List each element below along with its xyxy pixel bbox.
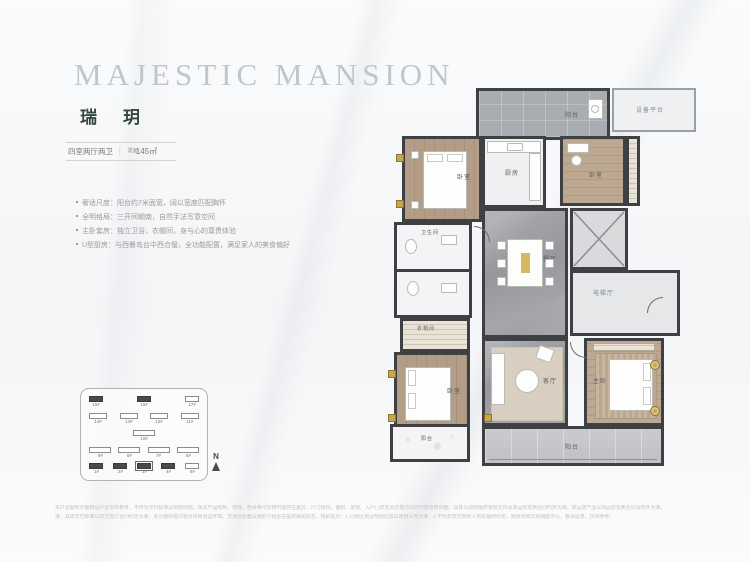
feature-item: U型厨房：与西餐岛台中西合璧，全功能配置，满足家人的美食偏好 (76, 239, 290, 253)
brochure-page: MAJESTIC MANSION 瑞玥 四室两厅两卫 │ 建面 145㎡ 奢适尺… (0, 0, 750, 562)
feature-text: U型厨房：与西餐岛台中西合璧，全功能配置，满足家人的美食偏好 (82, 242, 290, 249)
building-block-icon (133, 430, 155, 436)
disclaimer-line: 准，具体交付标准以双方签订合同约定为准，本页面所载内容对项目周边环境、交通及配套… (55, 514, 695, 522)
pillow (643, 387, 651, 405)
building-block-icon (137, 463, 151, 469)
room-balcony-side: 阳台 (390, 424, 470, 462)
room-label: 厨房 (505, 171, 519, 177)
dining-chair (497, 277, 506, 286)
dining-chair (545, 259, 554, 268)
bullet-icon (76, 229, 78, 231)
window-marker-icon (650, 360, 660, 370)
site-building: 14# (89, 413, 107, 426)
building-label: 12# (156, 420, 164, 425)
site-building: 16# (137, 396, 151, 409)
north-arrow-icon (212, 462, 220, 471)
building-block-icon (185, 396, 199, 402)
area-label: 建面 (128, 149, 134, 155)
building-label: 15# (92, 403, 100, 408)
table-runner (521, 253, 530, 273)
building-label: 4# (165, 470, 170, 475)
pillow (447, 154, 463, 162)
spec-divider: │ (118, 147, 123, 156)
room-closet: 衣帽间 (400, 318, 470, 352)
room-label: 卫生间 (421, 231, 439, 236)
disclaimer-line: 本户型图所示面积及户型仅供参考，不作为交付标准及购房依据，相关产品结构、墙体、色… (55, 505, 695, 513)
site-building: 11# (181, 413, 199, 426)
site-building: 7# (148, 447, 170, 460)
site-building: 17# (185, 396, 199, 409)
area-spec: 建面 145㎡ (128, 146, 157, 157)
building-block-icon (148, 447, 170, 453)
room-balcony-top: 阳台 (476, 88, 610, 140)
room-living: 客厅 (482, 338, 568, 426)
site-building: 1# (89, 463, 103, 476)
building-block-icon (150, 413, 168, 419)
room-dining: 餐厅 (482, 208, 568, 338)
building-label: 6# (185, 453, 190, 458)
room-bedroom-top-left: 卧室 (402, 136, 482, 222)
unit-name: 瑞玥 (80, 103, 166, 128)
building-label: 10# (140, 437, 148, 442)
window-marker-icon (650, 406, 660, 416)
building-block-icon (161, 463, 175, 469)
room-bathroom: 卫生间 (394, 222, 472, 318)
layout-spec: 四室两厅两卫 (68, 146, 113, 157)
dining-chair (545, 241, 554, 250)
feature-item: 主卧套房：独立卫浴，衣帽间，身与心的尊贵体验 (76, 225, 290, 239)
site-plan-row: 15#16#17# (89, 396, 199, 409)
site-building: 10# (133, 430, 155, 443)
building-block-icon (113, 463, 127, 469)
nightstand (411, 201, 419, 209)
building-label: 8# (127, 453, 132, 458)
site-plan-row: 14#13#12#11# (89, 413, 199, 426)
site-building: 4# (161, 463, 175, 476)
kitchen-sink (507, 143, 523, 151)
elevator-shaft (570, 208, 628, 270)
building-block-icon (89, 413, 107, 419)
disclaimer: 本户型图所示面积及户型仅供参考，不作为交付标准及购房依据，相关产品结构、墙体、色… (55, 505, 695, 524)
dining-chair (545, 277, 554, 286)
room-label: 客厅 (543, 379, 557, 385)
dining-chair (497, 259, 506, 268)
bullet-icon (76, 201, 78, 203)
building-block-icon (137, 396, 151, 402)
coffee-table (515, 369, 539, 393)
room-label: 卧室 (447, 389, 461, 395)
room-bedroom-top-right: 卧室 (560, 136, 626, 206)
building-label: 1# (93, 470, 98, 475)
room-balcony-bottom: 阳台 (482, 426, 664, 466)
site-building: 12# (150, 413, 168, 426)
building-label: 14# (94, 420, 102, 425)
entry-door-icon (647, 297, 663, 313)
room-label: 卧室 (589, 173, 603, 179)
building-label: 17# (188, 403, 196, 408)
feature-text: 主卧套房：独立卫浴，衣帽间，身与心的尊贵体验 (82, 228, 236, 235)
site-building: 2# (113, 463, 127, 476)
building-block-icon (181, 413, 199, 419)
feature-text: 奢适尺度：阳台约7米面宽，阔以宽度匹配胸怀 (82, 200, 226, 207)
wardrobe (593, 343, 655, 351)
site-plan-row: 9#8#7#6# (89, 447, 199, 460)
desk (567, 143, 589, 153)
room-label: 设备平台 (636, 108, 664, 114)
site-building: 9# (89, 447, 111, 460)
room-equipment-platform: 设备平台 (612, 88, 696, 132)
bullet-icon (76, 243, 78, 245)
building-label: 11# (186, 420, 193, 425)
building-label: 5# (189, 470, 194, 475)
room-label: 阳台 (421, 437, 433, 442)
feature-list: 奢适尺度：阳台约7米面宽，阔以宽度匹配胸怀 全明格局：三开间朝南，自然手法写意空… (76, 197, 290, 253)
window-marker-icon (396, 200, 404, 208)
room-label: 衣帽间 (417, 327, 435, 332)
window-marker-icon (388, 414, 396, 422)
elevator-x-icon (573, 211, 625, 267)
feature-text: 全明格局：三开间朝南，自然手法写意空间 (82, 214, 215, 221)
bullet-icon (76, 215, 78, 217)
window-marker-icon (388, 370, 396, 378)
washing-machine-drum-icon (591, 105, 599, 113)
building-label: 9# (97, 453, 102, 458)
building-label: 7# (156, 453, 161, 458)
room-label: 主卧 (593, 379, 607, 385)
wardrobe (626, 136, 640, 206)
pillow (427, 154, 443, 162)
feature-item: 全明格局：三开间朝南，自然手法写意空间 (76, 211, 290, 225)
compass: N (209, 452, 223, 471)
building-block-icon (185, 463, 199, 469)
sofa (491, 353, 505, 405)
room-label: 卧室 (457, 175, 471, 181)
site-building: 3# (137, 463, 151, 476)
balcony-rail (489, 459, 657, 460)
toilet (405, 239, 417, 254)
room-label: 电梯厅 (593, 291, 614, 297)
toilet (407, 281, 419, 296)
room-kitchen: 厨房 (482, 136, 546, 208)
floor-plan: 阳台 设备平台 卧室 厨房 卧室 (388, 84, 700, 484)
building-block-icon (89, 463, 103, 469)
spec-bar: 四室两厅两卫 │ 建面 145㎡ (66, 142, 176, 161)
wall-divider (397, 269, 469, 272)
window-marker-icon (484, 414, 492, 422)
vanity-sink (441, 283, 457, 293)
site-building: 6# (177, 447, 199, 460)
pillow (408, 393, 416, 409)
room-elevator-hall: 电梯厅 (570, 270, 680, 336)
site-building: 13# (120, 413, 138, 426)
site-plan-row: 1#2#3#4#5# (89, 463, 199, 476)
site-plan: 15#16#17#14#13#12#11#10#9#8#7#6#1#2#3#4#… (80, 388, 208, 481)
building-label: 13# (125, 420, 133, 425)
building-block-icon (89, 447, 111, 453)
area-value: 145㎡ (136, 147, 157, 156)
window-marker-icon (396, 154, 404, 162)
chair (571, 155, 582, 166)
nightstand (411, 151, 419, 159)
building-block-icon (89, 396, 103, 402)
vanity-sink (441, 235, 457, 245)
site-plan-row: 10# (89, 430, 199, 443)
dining-table (507, 239, 543, 287)
site-building: 15# (89, 396, 103, 409)
building-block-icon (118, 447, 140, 453)
door-icon (570, 342, 586, 358)
room-label: 阳台 (565, 445, 579, 451)
building-label: 2# (117, 470, 122, 475)
building-label: 3# (141, 470, 146, 475)
building-block-icon (177, 447, 199, 453)
site-building: 5# (185, 463, 199, 476)
room-label: 阳台 (565, 113, 579, 119)
dining-chair (497, 241, 506, 250)
kitchen-counter (529, 153, 541, 201)
building-block-icon (120, 413, 138, 419)
building-label: 16# (140, 403, 148, 408)
site-building: 8# (118, 447, 140, 460)
pillow (408, 370, 416, 386)
compass-north-label: N (209, 452, 223, 461)
room-bedroom-bottom-left: 卧室 (394, 352, 470, 430)
feature-item: 奢适尺度：阳台约7米面宽，阔以宽度匹配胸怀 (76, 197, 290, 211)
